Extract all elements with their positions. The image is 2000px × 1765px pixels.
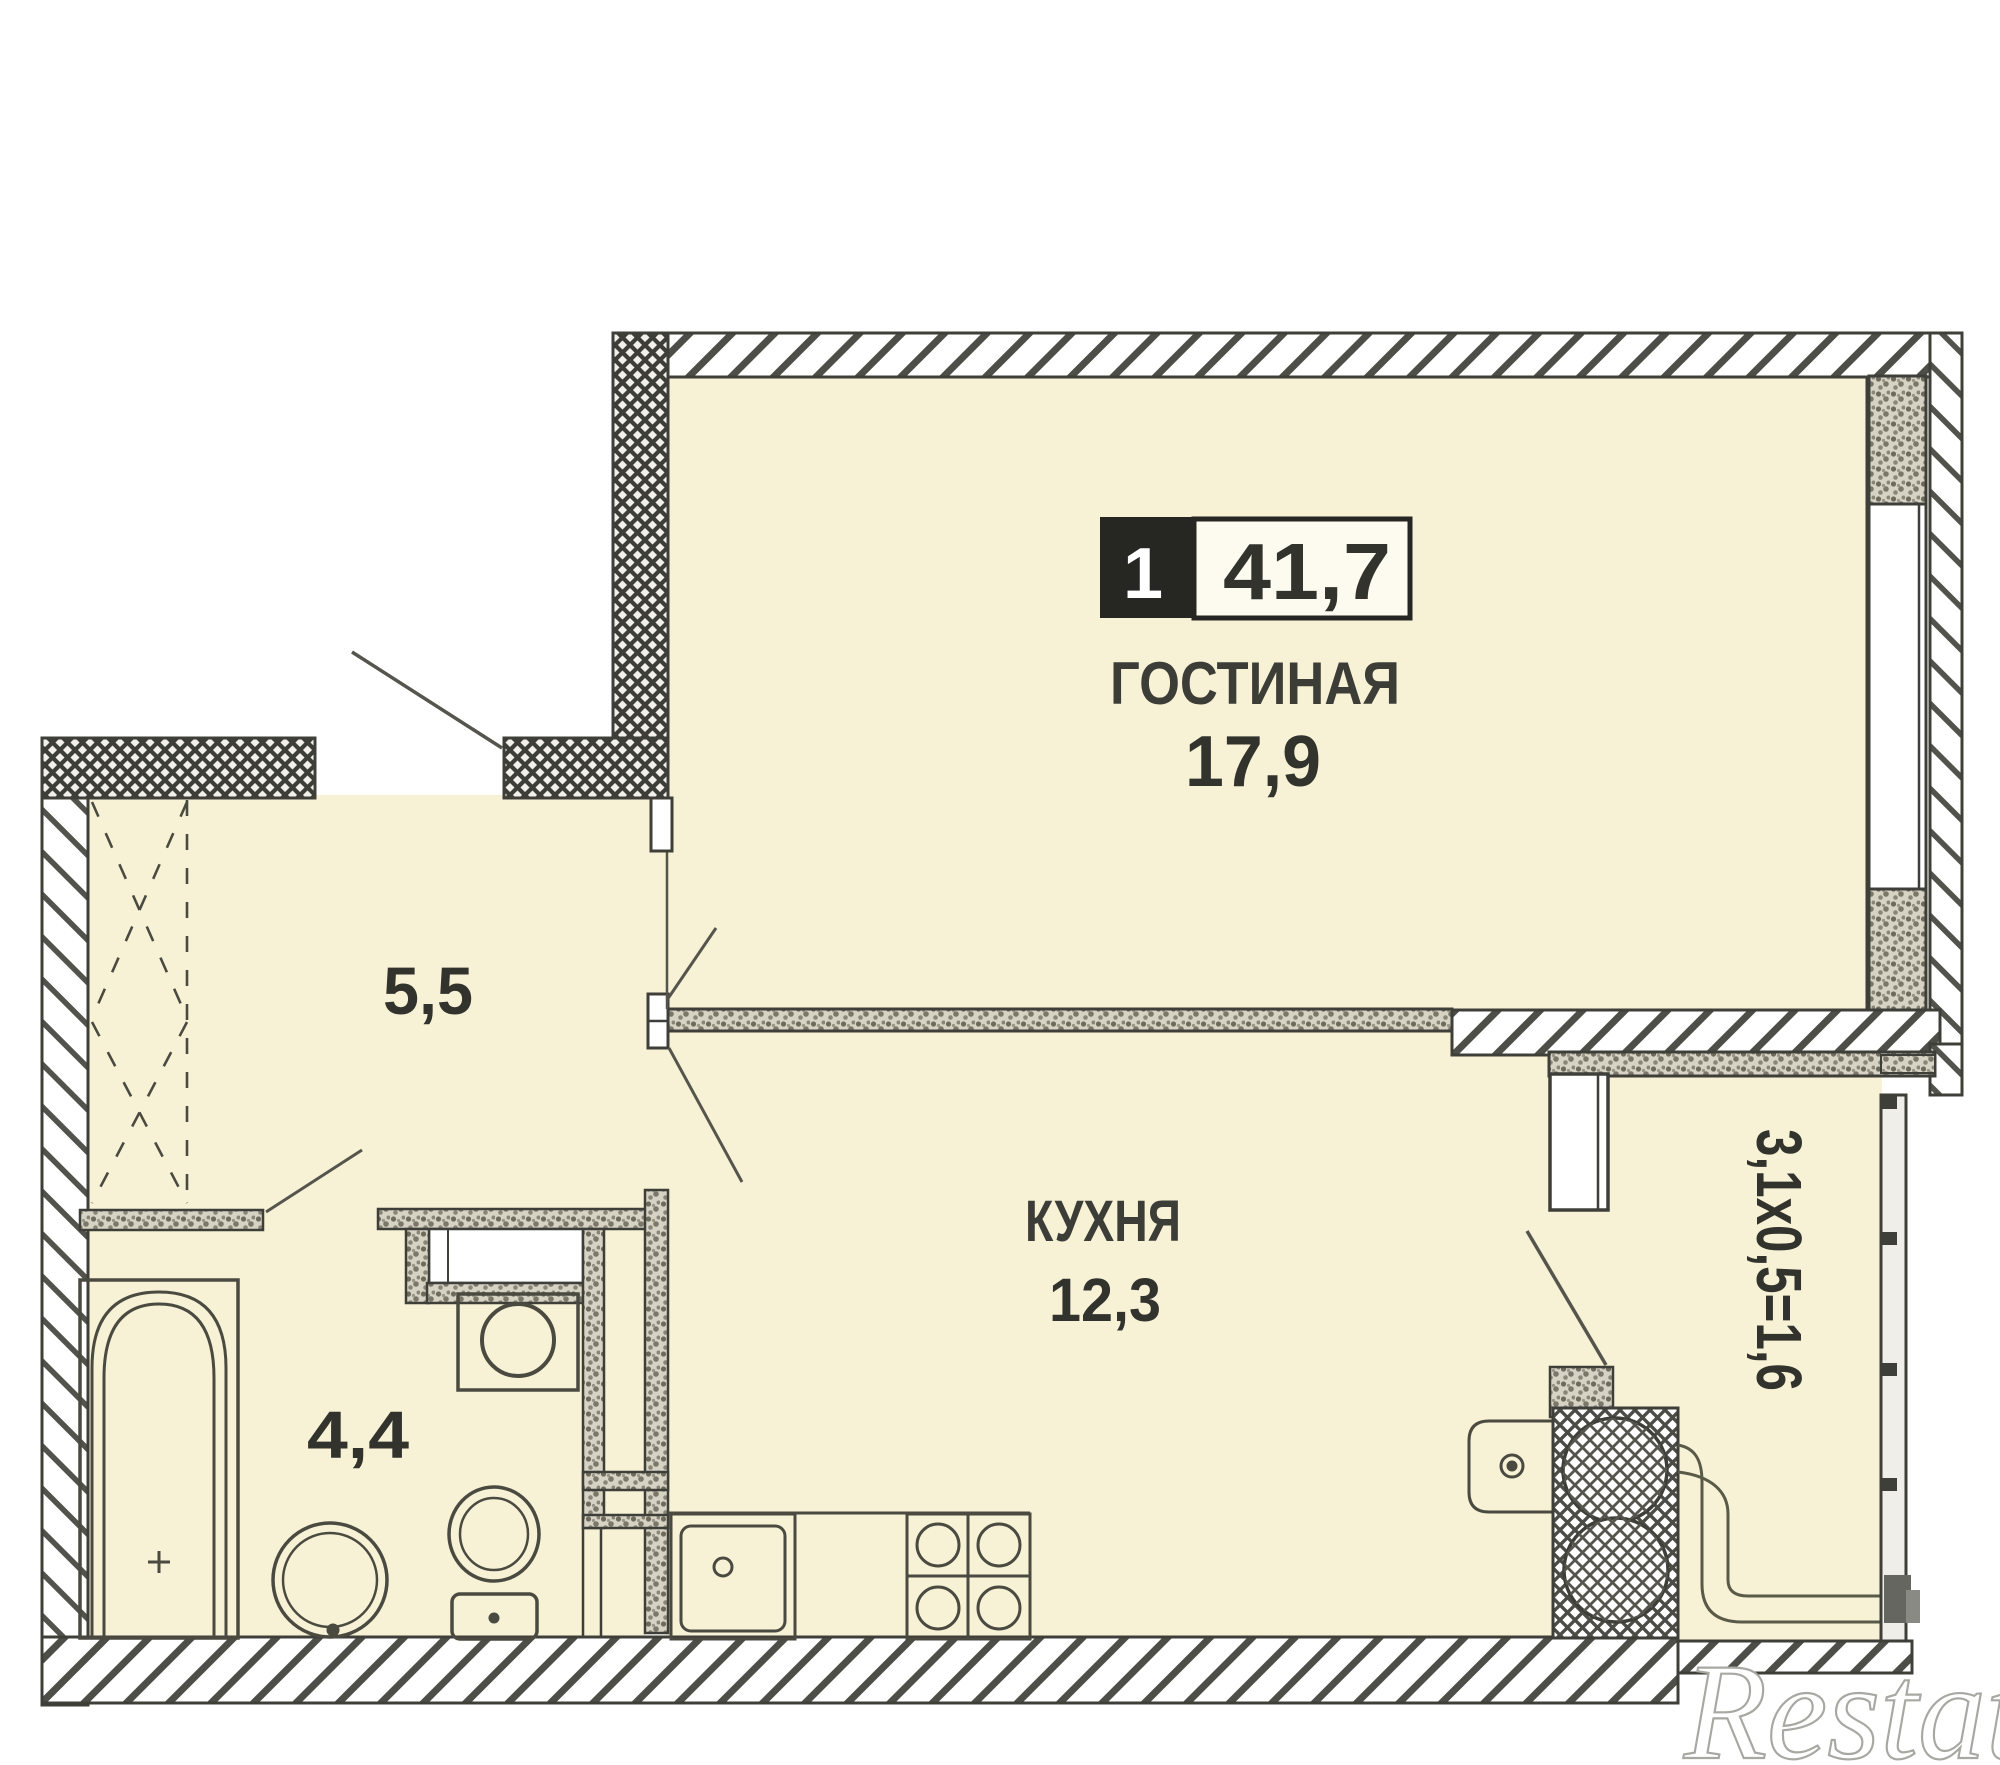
svg-text:Restate: Restate bbox=[1683, 1635, 2000, 1765]
svg-text:41,7: 41,7 bbox=[1223, 527, 1391, 616]
svg-text:ГОСТИНАЯ: ГОСТИНАЯ bbox=[1110, 650, 1400, 717]
svg-text:1: 1 bbox=[1123, 534, 1163, 614]
svg-text:КУХНЯ: КУХНЯ bbox=[1025, 1189, 1181, 1254]
svg-text:4,4: 4,4 bbox=[307, 1398, 409, 1473]
svg-text:3,1x0,5=1,6: 3,1x0,5=1,6 bbox=[1743, 1129, 1815, 1391]
svg-text:17,9: 17,9 bbox=[1185, 722, 1321, 802]
svg-text:12,3: 12,3 bbox=[1049, 1266, 1161, 1334]
svg-text:5,5: 5,5 bbox=[383, 954, 473, 1029]
